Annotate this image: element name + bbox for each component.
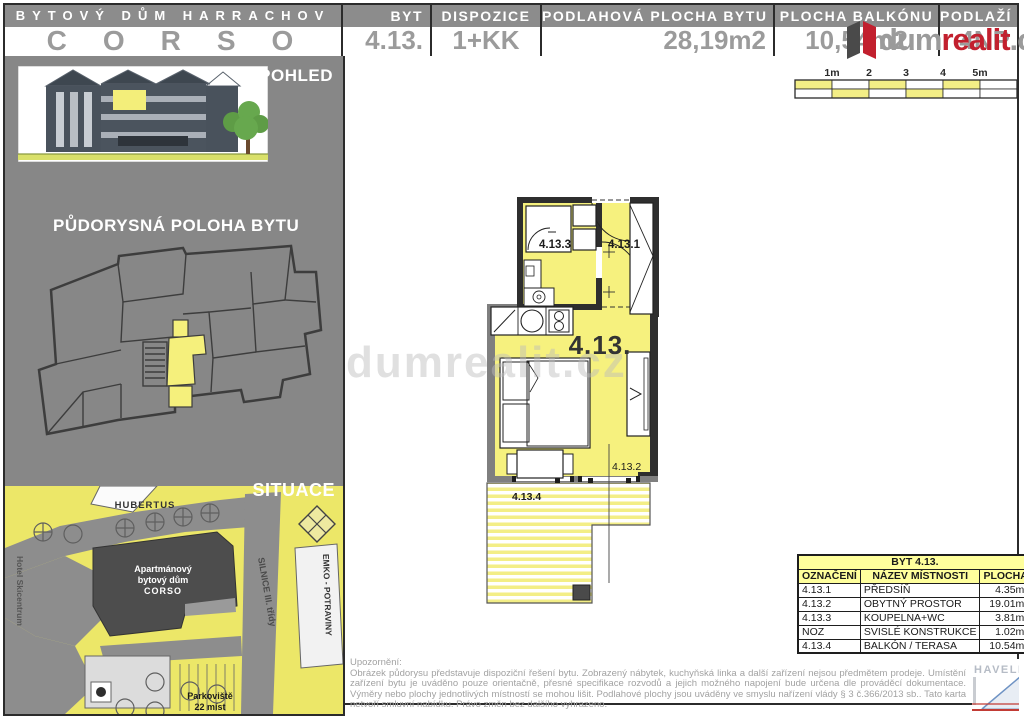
cell-code: 4.13.1 [798,583,860,597]
map-label-hotel: Hotel Skicentrum [15,556,25,626]
dispozice-label: DISPOZICE [432,5,540,27]
pohled-label: POHLED [259,66,333,86]
building-name: CORSO [5,27,341,56]
room-label-living: 4.13.2 [612,461,641,473]
hall-wardrobe [630,203,653,314]
apartment-floor-plan: 4.13.3 4.13.1 4.13. 4.13.2 4.13.4 [478,192,664,614]
architect-logo-graphic: HAVELKA [972,659,1019,716]
situation-map: HUBERTUS Hotel Skicentrum Apartmánový by… [5,486,343,714]
col-header-name: NÁZEV MÍSTNOSTI [860,569,980,583]
cell-name: KOUPELNA+WC [860,611,980,625]
cell-area: 4.35m² [980,583,1024,597]
plocha-bytu-value: 28,19m2 [542,27,773,56]
room-area-table: BYT 4.13. OZNAČENÍ NÁZEV MÍSTNOSTI PLOCH… [797,554,1024,654]
col-header-code: OZNAČENÍ [798,569,860,583]
brand-cz: .cz [1010,20,1024,60]
map-label-hubertus: HUBERTUS [115,500,176,511]
scale-tick-1m: 1m [824,67,839,79]
kitchen-counter [491,307,573,335]
building-label: BYTOVÝ DŮM HARRACHOV [5,5,341,27]
floor-position-plan [23,242,328,478]
map-label-building-3: CORSO [144,586,182,596]
header-byt-cell: BYT 4.13. [341,5,430,56]
map-label-parking-2: 22 míst [194,702,225,712]
chair [507,454,517,474]
map-label-building-1: Apartmánový [134,564,192,574]
header-building-cell: BYTOVÝ DŮM HARRACHOV CORSO [5,5,341,56]
cell-area: 19.01m² [980,597,1024,611]
disclaimer-title: Upozornění: [350,658,966,669]
dumrealit-house-icon [845,20,879,60]
scale-tick-5m: 5m [972,67,987,79]
room-label-bathroom: 4.13.3 [539,239,571,251]
cell-name: OBYTNÝ PROSTOR [860,597,980,611]
table [517,450,563,478]
architect-name: HAVELKA [974,664,1019,676]
room-label-balcony: 4.13.4 [512,491,541,503]
cell-code: NOZ [798,625,860,639]
cell-code: 4.13.2 [798,597,860,611]
cell-name: PŘEDSÍŇ [860,583,980,597]
cell-area: 10.54m² [980,639,1024,653]
scale-ruler: 1m 2 3 4 5m [790,64,1020,104]
byt-label: BYT [343,5,430,27]
sink [524,260,541,288]
dispozice-value: 1+KK [432,27,540,56]
chair [563,454,573,474]
cell-area: 3.81m² [980,611,1024,625]
watermark-text: dumrealit.cz [346,338,627,388]
cell-code: 4.13.3 [798,611,860,625]
room-wardrobe [627,352,650,436]
col-header-area: PLOCHA [980,569,1024,583]
cell-code: 4.13.4 [798,639,860,653]
table-row: NOZ SVISLÉ KONSTRUKCE 1.02m² [798,625,1024,639]
plocha-bytu-label: PODLAHOVÁ PLOCHA BYTU [542,5,773,27]
disclaimer-body: Obrázek půdorysu představuje dispoziční … [350,669,966,711]
header-dispozice-cell: DISPOZICE 1+KK [430,5,540,56]
dumrealit-logo: dumrealit.cz [845,20,1024,60]
scale-tick-2: 2 [866,67,872,79]
cell-area: 1.02m² [980,625,1024,639]
scale-tick-3: 3 [903,67,909,79]
table-title: BYT 4.13. [798,555,1024,569]
brand-realit: realit [941,20,1009,60]
cell-name: BALKÓN / TERASA [860,639,980,653]
sidebar-panel: POHLED PŮDORYSNÁ POLOHA BYTU [3,56,345,716]
brand-dum: dum [879,20,941,60]
header-plocha-bytu-cell: PODLAHOVÁ PLOCHA BYTU 28,19m2 [540,5,773,56]
pudorys-label: PŮDORYSNÁ POLOHA BYTU [53,216,299,236]
scale-tick-4: 4 [940,67,946,79]
architect-logo: HAVELKA [972,659,1019,716]
cell-name: SVISLÉ KONSTRUKCE [860,625,980,639]
byt-value: 4.13. [343,27,430,56]
table-row: 4.13.1 PŘEDSÍŇ 4.35m² [798,583,1024,597]
table-row: 4.13.3 KOUPELNA+WC 3.81m² [798,611,1024,625]
situace-label: SITUACE [252,480,335,501]
room-label-hall: 4.13.1 [608,239,641,251]
map-label-building-2: bytový dům [138,575,189,585]
building-elevation-image [18,66,268,162]
table-row: 4.13.2 OBYTNÝ PROSTOR 19.01m² [798,597,1024,611]
table-row: 4.13.4 BALKÓN / TERASA 10.54m² [798,639,1024,653]
map-label-parking-1: Parkoviště [187,691,233,701]
disclaimer: Upozornění: Obrázek půdorysu představuje… [350,658,966,711]
